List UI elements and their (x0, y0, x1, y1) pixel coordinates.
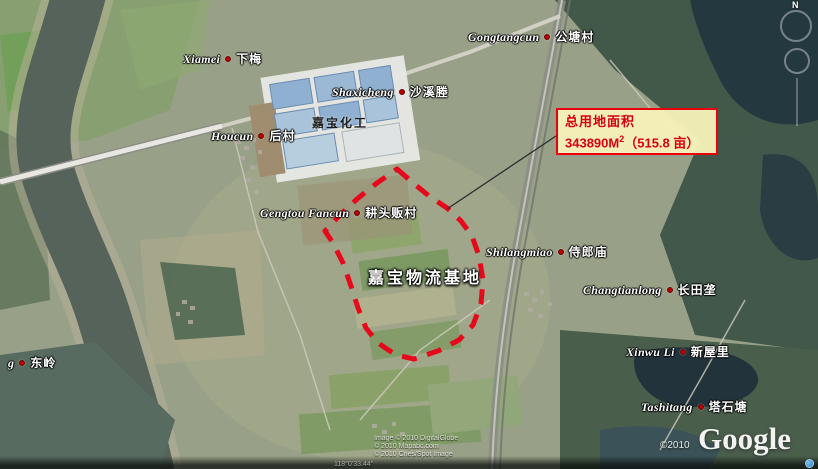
google-earth-viewport[interactable]: Xiamei下梅 Gongtangcun公塘村 Shaxicheng沙溪塍 Ho… (0, 0, 818, 469)
place-chinese: 沙溪塍 (410, 85, 449, 99)
place-label-xinwu-li[interactable]: Xinwu Li新屋里 (626, 345, 730, 359)
status-bar: 118°0'33.44" (0, 456, 818, 469)
place-pinyin: g (8, 356, 14, 370)
place-label-shaxicheng[interactable]: Shaxicheng沙溪塍 (332, 85, 449, 99)
copyright-year: ©2010 (660, 440, 690, 451)
place-label-xiamei[interactable]: Xiamei下梅 (183, 52, 262, 66)
move-joystick[interactable] (784, 48, 810, 74)
place-chinese: 塔石塘 (709, 400, 748, 414)
place-chinese: 新屋里 (691, 345, 730, 359)
compass-north-label: N (792, 0, 799, 10)
status-coordinates: 118°0'33.44" (334, 461, 373, 468)
streaming-globe-icon (805, 459, 814, 468)
place-chinese: 下梅 (236, 52, 262, 66)
look-joystick[interactable] (780, 10, 812, 42)
place-pinyin: Shaxicheng (332, 85, 394, 99)
place-chinese: 侍郎庙 (569, 245, 608, 259)
place-pinyin: Houcun (211, 129, 253, 143)
annotation-area-value: 343890M2（515.8 亩） (565, 130, 709, 152)
annotation-title: 总用地面积 (565, 113, 709, 130)
zoom-slider[interactable] (796, 78, 798, 126)
place-chinese: 东岭 (30, 356, 56, 370)
place-marker-dot (558, 249, 564, 255)
place-label-changtianlong[interactable]: Changtianlong长田垄 (583, 283, 717, 297)
land-area-annotation: 总用地面积 343890M2（515.8 亩） (556, 108, 718, 155)
place-label-shilangmiao[interactable]: Shilangmiao侍郎庙 (486, 245, 608, 259)
tree-grove (160, 262, 245, 340)
place-marker-dot (354, 210, 360, 216)
place-marker-dot (698, 404, 704, 410)
area-mu: （515.8 亩） (624, 135, 699, 150)
place-label-houcun[interactable]: Houcun后村 (211, 129, 296, 143)
place-marker-dot (667, 287, 673, 293)
logistics-base-label: 嘉宝物流基地 (368, 264, 482, 288)
place-pinyin: Gengtou Fancun (260, 206, 349, 220)
place-chinese: 公塘村 (555, 30, 594, 44)
place-pinyin: Tashitang (641, 400, 693, 414)
place-pinyin: Xinwu Li (626, 345, 675, 359)
place-pinyin: Changtianlong (583, 283, 662, 297)
place-marker-dot (544, 34, 550, 40)
factory-label: 嘉宝化工 (312, 114, 368, 131)
place-chinese: 耕头贩村 (365, 206, 417, 220)
place-marker-dot (19, 360, 25, 366)
google-logo: Google (698, 421, 791, 457)
place-chinese: 长田垄 (678, 283, 717, 297)
place-chinese: 后村 (269, 129, 295, 143)
place-pinyin: Xiamei (183, 52, 220, 66)
place-pinyin: Gongtangcun (468, 30, 539, 44)
place-marker-dot (399, 89, 405, 95)
place-marker-dot (258, 133, 264, 139)
place-label-gengtou-fancun[interactable]: Gengtou Fancun耕头贩村 (260, 206, 417, 220)
place-label-gongtangcun[interactable]: Gongtangcun公塘村 (468, 30, 594, 44)
place-label-tashitang[interactable]: Tashitang塔石塘 (641, 400, 748, 414)
place-marker-dot (680, 349, 686, 355)
satellite-imagery[interactable] (0, 0, 818, 469)
attribution-line: Image © 2010 DigitalGlobe (374, 435, 458, 443)
area-number: 343890M (565, 135, 619, 150)
place-marker-dot (225, 56, 231, 62)
place-pinyin: Shilangmiao (486, 245, 553, 259)
attribution-line: © 2010 Mapabc.com (374, 443, 458, 451)
place-label-dongling[interactable]: g东岭 (8, 356, 56, 370)
